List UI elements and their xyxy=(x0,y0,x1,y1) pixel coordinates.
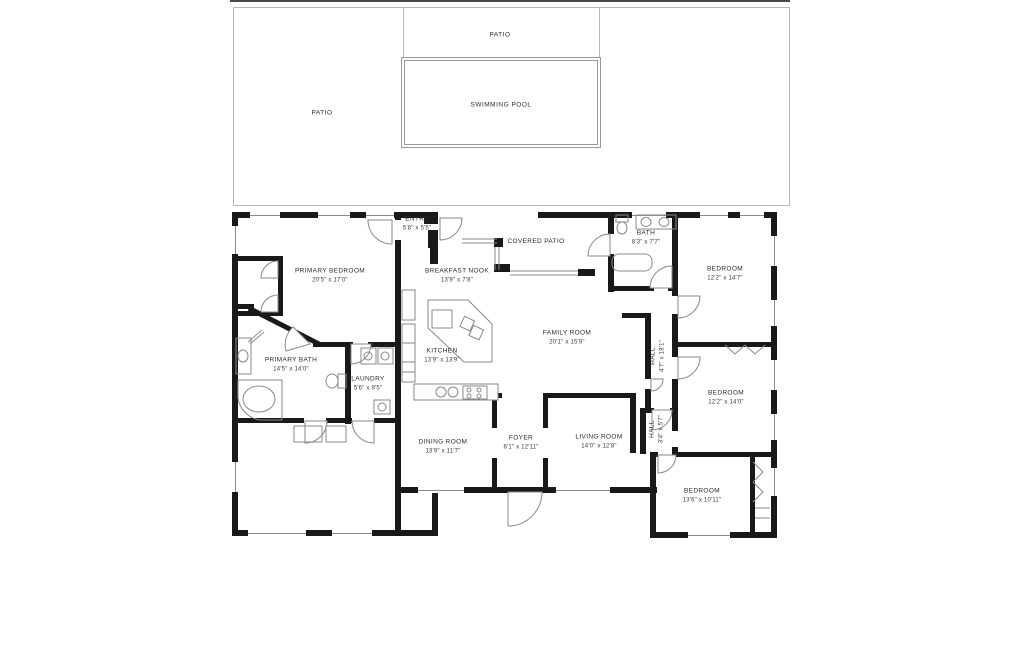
wall xyxy=(630,393,636,453)
window xyxy=(700,212,728,218)
room-dims: 13'9" x 11'7" xyxy=(419,447,468,456)
room-dims: 3'4" x 5'7" xyxy=(657,415,666,443)
wall-diagonal xyxy=(248,306,322,347)
room-dims: 6'1" x 12'11" xyxy=(503,443,538,452)
window xyxy=(771,300,777,326)
wall xyxy=(672,379,678,431)
room-label-dining-room: DINING ROOM 13'9" x 11'7" xyxy=(419,438,468,457)
room-label-bath: BATH 8'3" x 7'7" xyxy=(632,229,660,248)
room-name: HALL xyxy=(648,415,658,443)
room-label-primary-bedroom: PRIMARY BEDROOM 20'5" x 17'0" xyxy=(295,267,365,286)
room-name: BREAKFAST NOOK xyxy=(425,267,489,277)
room-label-bedroom-top-right: BEDROOM 12'2" x 14'7" xyxy=(707,265,743,284)
wall xyxy=(650,452,656,538)
room-label-foyer: FOYER 6'1" x 12'11" xyxy=(503,434,538,453)
wall xyxy=(608,212,614,234)
wall xyxy=(672,212,678,296)
wall xyxy=(543,398,548,428)
room-label-living-room: LIVING ROOM 14'0" x 12'8" xyxy=(575,433,622,452)
wall xyxy=(492,398,497,428)
room-name: PRIMARY BATH xyxy=(265,356,317,366)
wall xyxy=(494,238,503,247)
room-name: KITCHEN xyxy=(424,347,460,357)
window xyxy=(771,414,777,440)
window xyxy=(771,236,777,266)
room-name: LAUNDRY xyxy=(351,375,384,385)
wall xyxy=(672,342,777,347)
window xyxy=(366,212,394,218)
room-name: HALL xyxy=(649,340,659,372)
wall xyxy=(608,286,654,291)
room-label-bedroom-bottom-right: BEDROOM 13'6" x 10'11" xyxy=(683,487,722,506)
wall xyxy=(674,452,777,457)
room-label-laundry: LAUNDRY 5'6" x 9'5" xyxy=(351,375,384,394)
room-label-covered-patio: COVERED PATIO xyxy=(507,237,564,247)
plan-top-border xyxy=(230,0,790,2)
patio-left-label: PATIO xyxy=(311,110,332,117)
room-name: FAMILY ROOM xyxy=(543,329,591,339)
wall xyxy=(672,314,678,344)
wall xyxy=(650,452,658,457)
wall xyxy=(543,393,636,398)
room-dims: 20'5" x 17'0" xyxy=(295,276,365,285)
room-dims: 5'6" x 9'5" xyxy=(351,384,384,393)
wall xyxy=(543,458,548,492)
room-dims: 14'5" x 14'0" xyxy=(265,365,317,374)
room-label-hall-small: HALL 3'4" x 5'7" xyxy=(648,415,667,443)
room-name: COVERED PATIO xyxy=(507,237,564,247)
wall xyxy=(326,418,352,423)
room-name: BEDROOM xyxy=(707,265,743,275)
room-name: ENTRY xyxy=(403,215,431,225)
room-name: DINING ROOM xyxy=(419,438,468,448)
window xyxy=(771,468,777,496)
room-dims: 13'6" x 10'11" xyxy=(683,496,722,505)
room-label-hall: HALL 4'7" x 18'1" xyxy=(649,340,668,372)
room-dims: 8'3" x 7'7" xyxy=(632,238,660,247)
wall xyxy=(368,342,397,347)
wall xyxy=(232,418,304,423)
room-dims: 14'0" x 12'8" xyxy=(575,442,622,451)
window xyxy=(232,462,238,492)
room-name: FOYER xyxy=(503,434,538,444)
wall xyxy=(622,313,651,318)
wall xyxy=(672,347,678,357)
wall xyxy=(237,256,281,261)
wall xyxy=(645,389,651,408)
wall xyxy=(395,344,401,536)
wall xyxy=(494,264,510,272)
room-label-breakfast-nook: BREAKFAST NOOK 13'9" x 7'8" xyxy=(425,267,489,286)
window xyxy=(248,530,306,536)
room-name: BEDROOM xyxy=(708,389,744,399)
window xyxy=(740,212,764,218)
wall xyxy=(430,248,438,264)
room-dims: 20'1" x 15'9" xyxy=(543,338,591,347)
wall xyxy=(374,418,397,423)
swimming-pool-label: SWIMMING POOL xyxy=(470,102,531,109)
wall xyxy=(278,256,283,316)
window xyxy=(250,212,280,218)
room-name: BATH xyxy=(632,229,660,239)
wall xyxy=(395,240,401,346)
wall xyxy=(395,212,401,220)
room-dims: 4'7" x 18'1" xyxy=(658,340,667,372)
wall xyxy=(750,457,755,532)
window xyxy=(232,226,238,254)
room-dims: 12'2" x 14'7" xyxy=(707,274,743,283)
window xyxy=(771,360,777,390)
room-dims: 13'9" x 7'8" xyxy=(425,276,489,285)
window xyxy=(632,212,666,218)
window xyxy=(688,532,730,538)
room-name: PRIMARY BEDROOM xyxy=(295,267,365,277)
room-label-primary-bath: PRIMARY BATH 14'5" x 14'0" xyxy=(265,356,317,375)
room-name: LIVING ROOM xyxy=(575,433,622,443)
window xyxy=(318,212,350,218)
window xyxy=(418,487,464,493)
wall xyxy=(578,269,595,276)
window xyxy=(556,487,610,493)
wall xyxy=(640,408,646,454)
room-label-bedroom-mid-right: BEDROOM 12'2" x 14'0" xyxy=(708,389,744,408)
room-label-family-room: FAMILY ROOM 20'1" x 15'9" xyxy=(543,329,591,348)
wall xyxy=(345,342,351,424)
floor-plan: PATIO PATIO SWIMMING POOL xyxy=(0,0,1024,645)
room-dims: 5'8" x 5'5" xyxy=(403,224,431,233)
room-label-entry: ENTRY 5'8" x 5'5" xyxy=(403,215,431,234)
room-label-kitchen: KITCHEN 13'9" x 13'9" xyxy=(424,347,460,366)
wall xyxy=(492,458,497,492)
room-dims: 12'2" x 14'0" xyxy=(708,398,744,407)
room-dims: 13'9" x 13'9" xyxy=(424,356,460,365)
room-name: BEDROOM xyxy=(683,487,722,497)
window xyxy=(332,530,372,536)
patio-top-label: PATIO xyxy=(489,32,510,39)
wall xyxy=(432,487,438,536)
